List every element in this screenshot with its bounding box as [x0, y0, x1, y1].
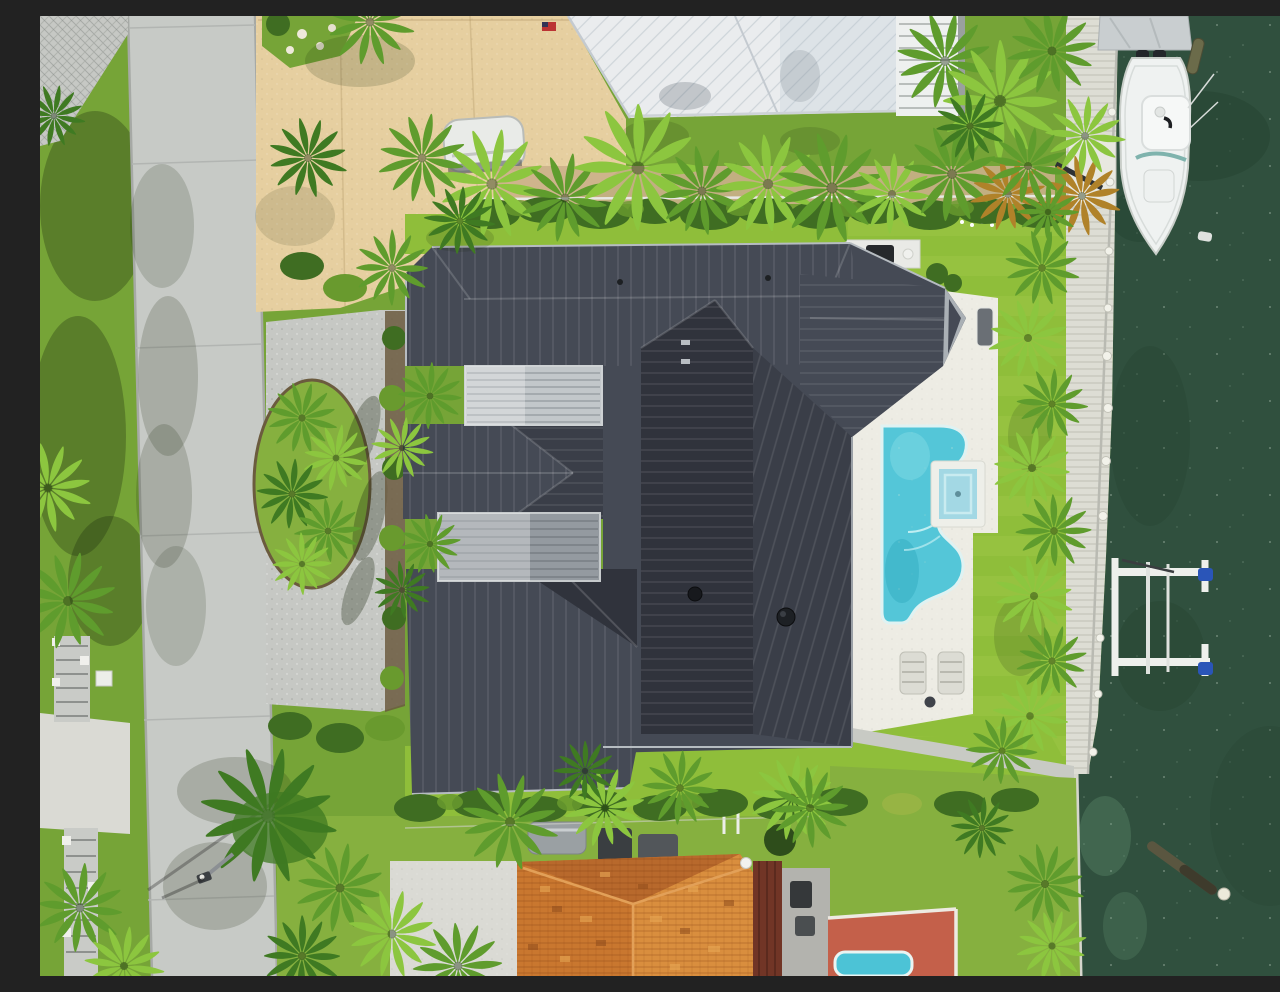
pergola	[465, 366, 602, 425]
aerial-photo	[40, 16, 1280, 976]
deck-bench	[977, 308, 993, 346]
roof-dome-vent	[777, 608, 795, 626]
pergola	[438, 513, 600, 581]
roof-dome-vent	[688, 587, 702, 601]
roof-vent	[681, 359, 690, 364]
roof-vent	[681, 340, 690, 345]
spa	[931, 461, 985, 527]
neighbor-pool	[835, 952, 912, 976]
garden-bed	[385, 311, 405, 712]
t-top	[1142, 96, 1190, 150]
aerial-photo-canvas	[40, 16, 1280, 976]
sun-lounger	[900, 652, 926, 694]
satellite-dish	[741, 858, 752, 869]
sun-lounger	[938, 652, 964, 694]
orange-tile-roof	[517, 854, 754, 976]
lift-cap	[1198, 568, 1213, 581]
bow-hatch	[1144, 170, 1174, 202]
side-table	[925, 697, 936, 708]
buoy	[1218, 888, 1230, 900]
covered-boat	[1098, 16, 1192, 50]
neighbor-pool-deck	[828, 909, 956, 976]
lift-cap	[1198, 662, 1213, 675]
